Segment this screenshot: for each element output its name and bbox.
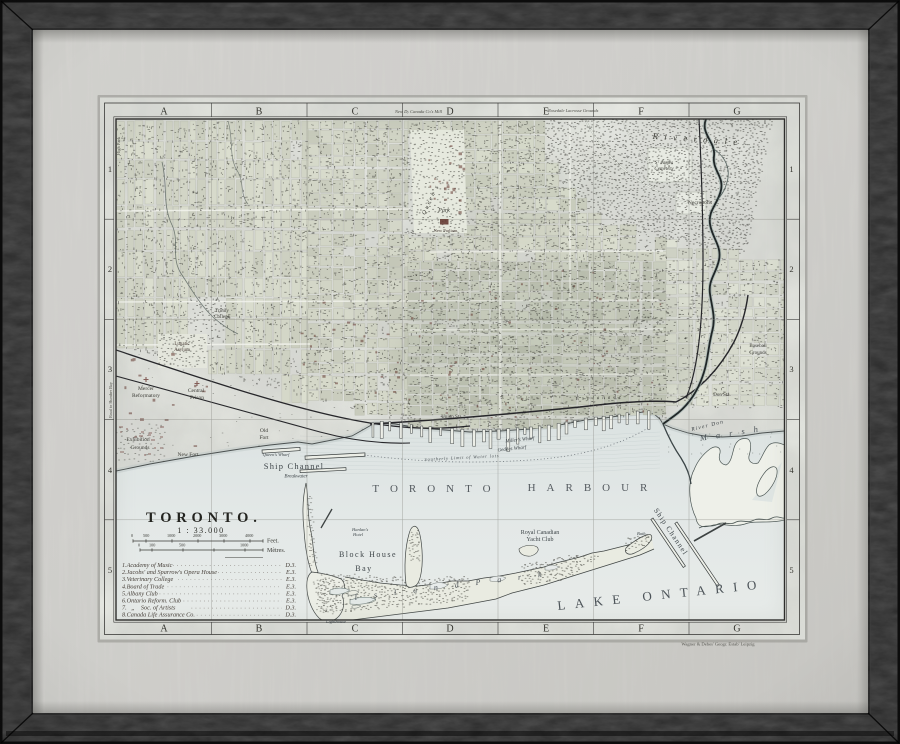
svg-text:500: 500 xyxy=(143,533,149,538)
svg-text:2000: 2000 xyxy=(193,533,201,538)
svg-text:TORONTO: TORONTO xyxy=(372,483,501,495)
svg-text:Old: Old xyxy=(260,428,269,434)
svg-text:3: 3 xyxy=(108,364,112,374)
svg-text:Lunatic: Lunatic xyxy=(174,342,190,347)
svg-text:New Dy Canada Co's Mill: New Dy Canada Co's Mill xyxy=(394,109,443,114)
svg-text:E: E xyxy=(543,624,549,635)
svg-text:New Parliam.: New Parliam. xyxy=(434,228,459,233)
svg-text:Feet.: Feet. xyxy=(267,539,279,545)
svg-text:D.3.: D.3. xyxy=(284,612,296,619)
svg-text:Prison: Prison xyxy=(190,395,204,401)
svg-text:C: C xyxy=(352,624,359,635)
svg-text:E.3.: E.3. xyxy=(285,569,296,576)
svg-text:Bath: Bath xyxy=(637,531,646,536)
svg-text:G: G xyxy=(733,107,740,118)
svg-text:Ship Channel: Ship Channel xyxy=(264,461,324,471)
svg-text:Cemetery: Cemetery xyxy=(654,167,674,172)
svg-text:Asylum: Asylum xyxy=(174,348,190,353)
svg-text:6.Ontario Reform. Club: 6.Ontario Reform. Club xyxy=(122,598,181,605)
svg-text:500: 500 xyxy=(179,543,185,548)
svg-text:2: 2 xyxy=(108,264,112,274)
svg-text:Royal Canadian: Royal Canadian xyxy=(521,530,560,536)
svg-text:A: A xyxy=(160,107,168,118)
svg-text:Breakwater: Breakwater xyxy=(284,475,307,480)
svg-text:100: 100 xyxy=(149,543,155,548)
svg-text:B: B xyxy=(256,107,263,118)
svg-text:Don Sta.: Don Sta. xyxy=(713,393,731,398)
svg-text:2.Jacobs' and Sparrow's Opera: 2.Jacobs' and Sparrow's Opera House xyxy=(122,569,217,576)
svg-text:3: 3 xyxy=(789,364,793,374)
svg-text:D.3.: D.3. xyxy=(284,562,296,569)
svg-text:8.Canada Life Assurance Co.: 8.Canada Life Assurance Co. xyxy=(122,612,195,619)
svg-text:G: G xyxy=(733,624,740,635)
svg-text:Bay: Bay xyxy=(355,564,372,573)
svg-text:High Park: High Park xyxy=(116,136,121,155)
svg-text:0: 0 xyxy=(131,533,133,538)
svg-text:TORONTO.: TORONTO. xyxy=(146,510,262,526)
svg-text:Trinity: Trinity xyxy=(215,309,229,314)
svg-text:HARBOUR: HARBOUR xyxy=(528,482,659,494)
svg-text:2: 2 xyxy=(789,264,793,274)
svg-text:Road to Humber Bay: Road to Humber Bay xyxy=(108,381,113,418)
svg-text:B: B xyxy=(256,624,263,635)
svg-text:Grounds: Grounds xyxy=(131,445,150,451)
svg-text:7. „ Soc. of Artists: 7. „ Soc. of Artists xyxy=(122,605,176,612)
svg-text:E.3.: E.3. xyxy=(285,590,296,597)
svg-text:Sᵀ James: Sᵀ James xyxy=(655,160,673,166)
svg-text:A: A xyxy=(160,624,168,635)
svg-text:5.Albany Club: 5.Albany Club xyxy=(122,590,158,597)
svg-text:Wagner & Debes' Geogr. Estab': Wagner & Debes' Geogr. Estab' Leipzig xyxy=(681,642,755,647)
svg-text:Union Sta.: Union Sta. xyxy=(441,415,462,420)
svg-text:1.Academy of Music: 1.Academy of Music xyxy=(122,562,173,569)
svg-text:Fort: Fort xyxy=(259,435,269,441)
svg-text:3000: 3000 xyxy=(219,533,227,538)
svg-text:F: F xyxy=(638,107,644,118)
svg-text:E.3.: E.3. xyxy=(285,598,296,605)
svg-text:1000: 1000 xyxy=(240,543,248,548)
svg-text:D: D xyxy=(446,107,453,118)
svg-text:F: F xyxy=(638,624,644,635)
svg-text:New Fort: New Fort xyxy=(178,452,199,458)
svg-text:1: 1 xyxy=(108,164,112,174)
svg-text:Hotel: Hotel xyxy=(352,532,364,537)
svg-text:D: D xyxy=(446,624,453,635)
svg-text:Rosedale Lacrosse Grounds: Rosedale Lacrosse Grounds xyxy=(547,108,599,113)
svg-text:4000: 4000 xyxy=(245,533,253,538)
svg-text:Baseball: Baseball xyxy=(749,344,767,349)
svg-text:Park: Park xyxy=(437,208,450,214)
svg-text:1: 1 xyxy=(789,164,793,174)
svg-text:College: College xyxy=(214,315,230,320)
svg-text:1000: 1000 xyxy=(167,533,175,538)
svg-text:0: 0 xyxy=(138,543,140,548)
svg-text:Yacht Club: Yacht Club xyxy=(527,537,554,543)
svg-text:Necropolis: Necropolis xyxy=(688,200,712,206)
svg-text:4.Board of Trade: 4.Board of Trade xyxy=(122,583,164,590)
svg-text:E.3.: E.3. xyxy=(285,583,296,590)
svg-text:E.3.: E.3. xyxy=(285,576,296,583)
svg-text:3.Veterinary College: 3.Veterinary College xyxy=(121,576,173,583)
svg-text:5: 5 xyxy=(108,565,112,575)
svg-text:Queen's Wharf: Queen's Wharf xyxy=(263,452,291,457)
svg-text:C: C xyxy=(352,107,359,118)
svg-text:D.3.: D.3. xyxy=(284,605,296,612)
svg-text:Mercer: Mercer xyxy=(138,386,154,392)
svg-text:5: 5 xyxy=(789,565,793,575)
svg-text:Block House: Block House xyxy=(339,550,397,559)
svg-text:Grounds: Grounds xyxy=(749,351,766,356)
svg-text:Lighthouse: Lighthouse xyxy=(325,619,346,624)
svg-text:Mètres.: Mètres. xyxy=(267,548,286,554)
svg-text:Central: Central xyxy=(188,388,205,394)
svg-text:Exhibition: Exhibition xyxy=(126,437,149,443)
svg-text:Reformatory: Reformatory xyxy=(132,392,160,399)
